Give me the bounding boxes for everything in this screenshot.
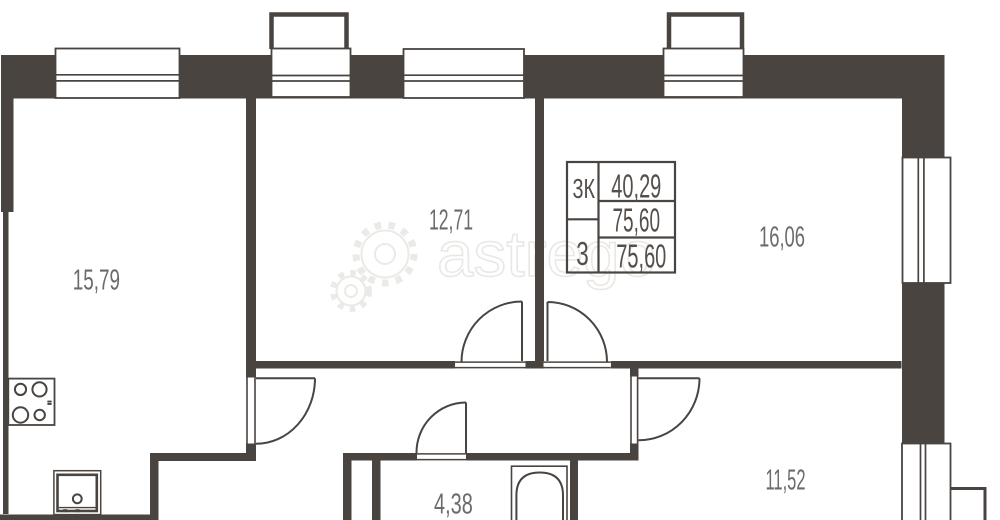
svg-text:12,71: 12,71 [429, 205, 473, 237]
svg-text:3К: 3К [573, 173, 596, 204]
svg-text:3: 3 [576, 235, 589, 272]
svg-text:75,60: 75,60 [613, 201, 661, 238]
svg-text:40,29: 40,29 [611, 168, 661, 205]
svg-text:11,52: 11,52 [766, 465, 806, 497]
svg-text:4,38: 4,38 [434, 489, 473, 520]
svg-text:15,79: 15,79 [73, 265, 120, 297]
svg-text:16,06: 16,06 [759, 222, 805, 254]
svg-text:75,60: 75,60 [616, 238, 666, 275]
